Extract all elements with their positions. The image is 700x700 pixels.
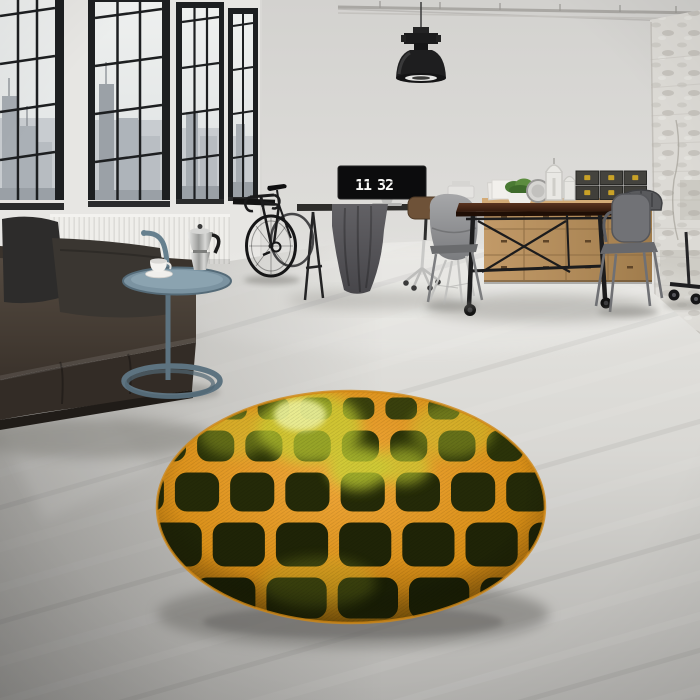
photo-vignette [0,0,700,700]
scene-canvas: 11 32 [0,0,700,700]
interior-photo: 11 32 [0,0,700,700]
